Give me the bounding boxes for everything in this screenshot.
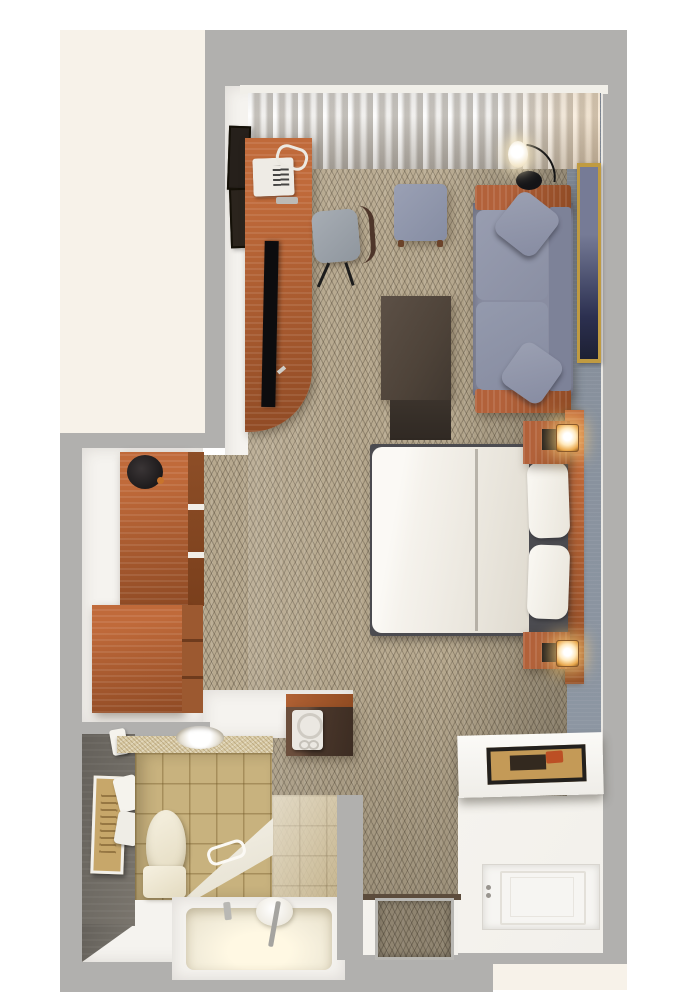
entry-door-panel-inner <box>510 877 574 917</box>
coffee-table-lower-shelf <box>390 400 451 440</box>
console-picture-dark-shape <box>510 754 547 770</box>
floor-lamp-base <box>516 171 542 190</box>
desk-remote <box>276 197 298 204</box>
bag-accent-dot <box>157 477 164 484</box>
exterior-area-bottom-right <box>493 962 627 990</box>
bed-duvet <box>372 447 529 633</box>
nightstand-bottom-lamp-glow <box>556 640 579 667</box>
nook-cherry-trim <box>286 694 353 707</box>
bag-on-wardrobe <box>127 455 163 489</box>
nightstand-top-lamp-body <box>542 429 557 450</box>
console-picture-orange-shape <box>546 750 564 763</box>
coffee-table <box>381 296 451 400</box>
nightstand-bottom-lamp-body <box>542 643 557 662</box>
nightstand-top-lamp-glow <box>556 424 579 452</box>
door-hinge-2 <box>486 893 491 898</box>
toilet-tank <box>143 866 186 898</box>
wardrobe-shelf-edge-1 <box>188 504 204 510</box>
door-hinge-1 <box>486 885 491 890</box>
wardrobe-shelf-edge-2 <box>188 552 204 558</box>
ottoman-leg-2 <box>437 240 443 247</box>
floor-plan-render <box>0 0 681 1000</box>
desk-chair-seat <box>311 208 361 264</box>
exterior-wall-top <box>205 30 627 90</box>
carpet-threshold <box>361 894 461 900</box>
coffee-maker-lid-ring <box>297 713 323 739</box>
bed-pillow-2 <box>527 544 571 619</box>
coffee-maker-detail-2 <box>308 740 319 750</box>
ottoman-leg-1 <box>398 240 404 247</box>
door-mat <box>378 901 451 957</box>
exterior-wall-right <box>601 30 627 952</box>
wardrobe-shelf-side <box>188 452 204 606</box>
bed-duvet-fold <box>475 449 478 631</box>
dresser-drawer-fronts <box>182 605 203 713</box>
carpet-left-extension <box>203 455 248 690</box>
exterior-area-top-left <box>60 30 205 433</box>
dresser <box>92 605 182 713</box>
wall-closet-top <box>60 433 227 448</box>
ottoman <box>394 184 447 241</box>
bathroom-tile-wash <box>272 795 337 897</box>
interior-wall-left-upper <box>205 30 227 448</box>
floor-lamp-bulb <box>508 141 528 168</box>
wall-bath-entry-divider <box>337 795 363 960</box>
exterior-wall-left-lower <box>60 433 83 992</box>
wall-art-canvas <box>580 167 598 359</box>
bed-pillow-1 <box>527 461 571 538</box>
vanity-sink <box>176 726 224 749</box>
